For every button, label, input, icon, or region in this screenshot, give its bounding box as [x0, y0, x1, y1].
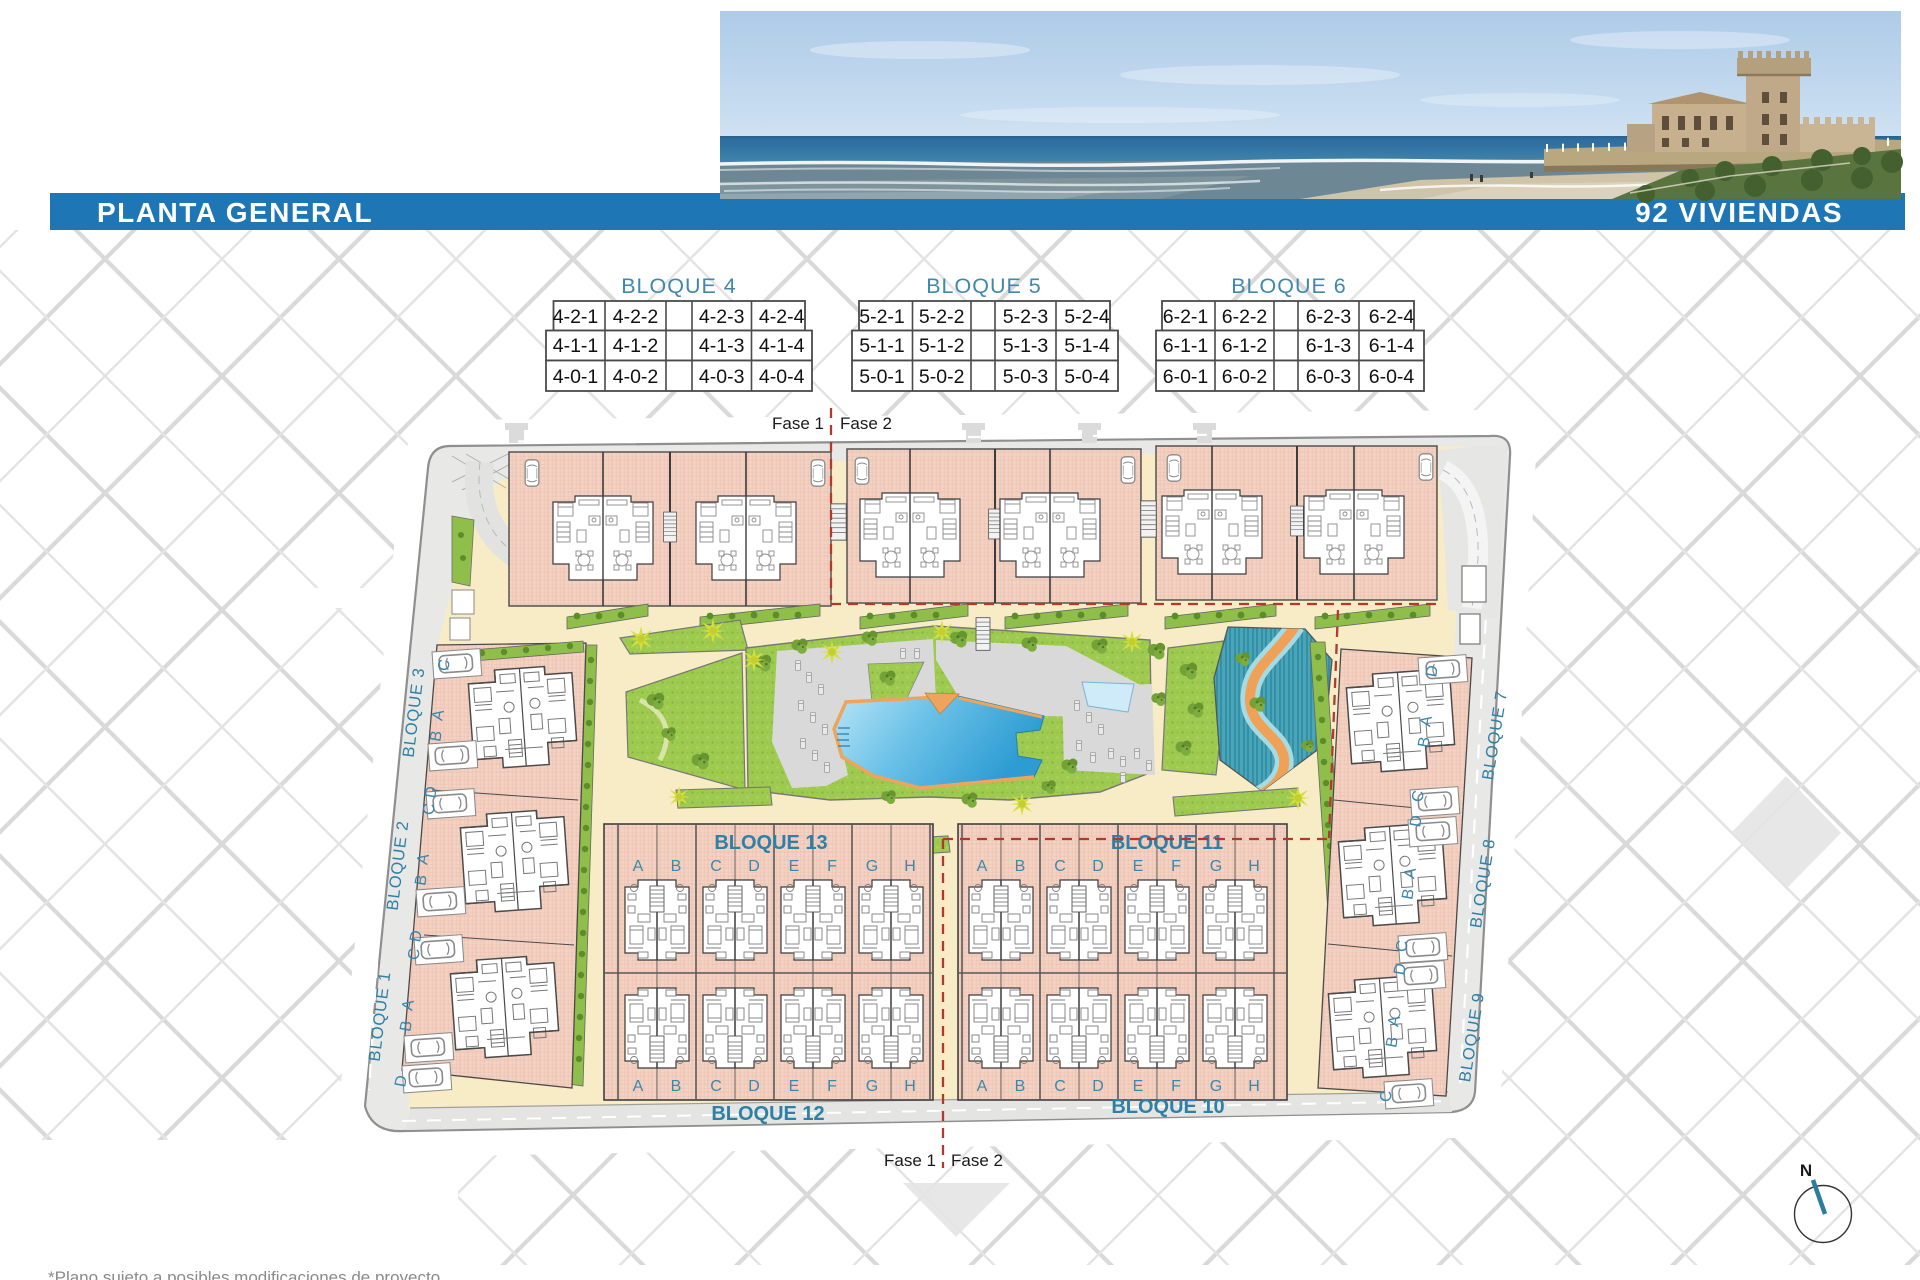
svg-text:Fase 1: Fase 1 — [884, 1151, 936, 1170]
svg-text:C: C — [710, 1078, 722, 1095]
svg-text:6-0-4: 6-0-4 — [1369, 366, 1415, 388]
svg-text:4-0-1: 4-0-1 — [553, 366, 599, 388]
svg-text:6-2-2: 6-2-2 — [1222, 306, 1268, 328]
svg-text:PLANTA GENERAL: PLANTA GENERAL — [97, 197, 373, 228]
svg-text:F: F — [1171, 1078, 1181, 1095]
svg-text:BLOQUE 6: BLOQUE 6 — [1231, 274, 1347, 298]
svg-text:Fase 2: Fase 2 — [951, 1151, 1003, 1170]
svg-text:5-0-2: 5-0-2 — [919, 366, 965, 388]
svg-text:4-1-1: 4-1-1 — [553, 335, 599, 357]
svg-text:92 VIVIENDAS: 92 VIVIENDAS — [1635, 197, 1843, 228]
svg-text:C: C — [710, 858, 722, 875]
svg-text:6-1-2: 6-1-2 — [1222, 335, 1268, 357]
svg-text:E: E — [1133, 858, 1144, 875]
svg-text:BLOQUE 4: BLOQUE 4 — [621, 274, 737, 298]
svg-text:B: B — [1015, 1078, 1026, 1095]
svg-text:6-0-2: 6-0-2 — [1222, 366, 1268, 388]
svg-text:F: F — [1171, 858, 1181, 875]
svg-text:4-2-2: 4-2-2 — [613, 306, 659, 328]
svg-text:BLOQUE 5: BLOQUE 5 — [926, 274, 1042, 298]
svg-text:5-2-3: 5-2-3 — [1003, 306, 1049, 328]
svg-text:4-2-1: 4-2-1 — [553, 306, 599, 328]
svg-text:4-0-3: 4-0-3 — [699, 366, 745, 388]
svg-text:B: B — [1015, 858, 1026, 875]
svg-text:D: D — [1092, 858, 1104, 875]
svg-text:E: E — [789, 858, 800, 875]
svg-text:6-2-3: 6-2-3 — [1306, 306, 1352, 328]
svg-text:Fase 2: Fase 2 — [840, 414, 892, 433]
svg-text:4-1-2: 4-1-2 — [613, 335, 659, 357]
svg-text:E: E — [1133, 1078, 1144, 1095]
svg-text:D: D — [748, 858, 760, 875]
svg-text:G: G — [1210, 858, 1222, 875]
svg-text:N: N — [1800, 1161, 1812, 1180]
svg-text:5-0-1: 5-0-1 — [859, 366, 905, 388]
svg-text:6-2-1: 6-2-1 — [1163, 306, 1209, 328]
svg-text:*Plano sujeto a posibles modif: *Plano sujeto a posibles modificaciones … — [48, 1268, 440, 1280]
svg-text:6-1-3: 6-1-3 — [1306, 335, 1352, 357]
svg-text:F: F — [827, 858, 837, 875]
svg-text:F: F — [827, 1078, 837, 1095]
svg-text:4-2-3: 4-2-3 — [699, 306, 745, 328]
svg-text:C: C — [1054, 1078, 1066, 1095]
svg-text:BLOQUE 13: BLOQUE 13 — [714, 832, 827, 854]
svg-text:4-0-2: 4-0-2 — [613, 366, 659, 388]
svg-text:5-0-4: 5-0-4 — [1064, 366, 1110, 388]
svg-text:BLOQUE 10: BLOQUE 10 — [1111, 1096, 1224, 1118]
svg-text:E: E — [789, 1078, 800, 1095]
svg-text:4-1-4: 4-1-4 — [759, 335, 805, 357]
svg-text:B: B — [671, 858, 682, 875]
svg-text:5-0-3: 5-0-3 — [1003, 366, 1049, 388]
svg-text:H: H — [904, 858, 916, 875]
svg-text:5-2-4: 5-2-4 — [1064, 306, 1110, 328]
svg-text:5-1-1: 5-1-1 — [859, 335, 905, 357]
svg-text:A: A — [633, 858, 644, 875]
svg-text:A: A — [633, 1078, 644, 1095]
svg-text:6-0-3: 6-0-3 — [1306, 366, 1352, 388]
svg-text:G: G — [866, 1078, 878, 1095]
svg-text:5-2-2: 5-2-2 — [919, 306, 965, 328]
svg-text:BLOQUE 12: BLOQUE 12 — [711, 1103, 824, 1125]
svg-text:H: H — [904, 1078, 916, 1095]
svg-text:D: D — [748, 1078, 760, 1095]
svg-text:A: A — [977, 858, 988, 875]
svg-text:G: G — [1210, 1078, 1222, 1095]
svg-text:6-2-4: 6-2-4 — [1369, 306, 1415, 328]
svg-text:H: H — [1248, 858, 1260, 875]
svg-text:D: D — [1092, 1078, 1104, 1095]
svg-text:5-1-4: 5-1-4 — [1064, 335, 1110, 357]
svg-text:4-1-3: 4-1-3 — [699, 335, 745, 357]
svg-text:Fase 1: Fase 1 — [772, 414, 824, 433]
svg-text:5-2-1: 5-2-1 — [859, 306, 905, 328]
svg-text:4-0-4: 4-0-4 — [759, 366, 805, 388]
svg-text:5-1-2: 5-1-2 — [919, 335, 965, 357]
svg-text:C: C — [1054, 858, 1066, 875]
svg-text:4-2-4: 4-2-4 — [759, 306, 805, 328]
svg-text:6-0-1: 6-0-1 — [1163, 366, 1209, 388]
svg-text:A: A — [977, 1078, 988, 1095]
svg-text:6-1-4: 6-1-4 — [1369, 335, 1415, 357]
svg-text:B: B — [671, 1078, 682, 1095]
svg-text:BLOQUE 11: BLOQUE 11 — [1111, 832, 1223, 854]
svg-text:5-1-3: 5-1-3 — [1003, 335, 1049, 357]
svg-text:6-1-1: 6-1-1 — [1163, 335, 1209, 357]
svg-text:G: G — [866, 858, 878, 875]
svg-text:H: H — [1248, 1078, 1260, 1095]
